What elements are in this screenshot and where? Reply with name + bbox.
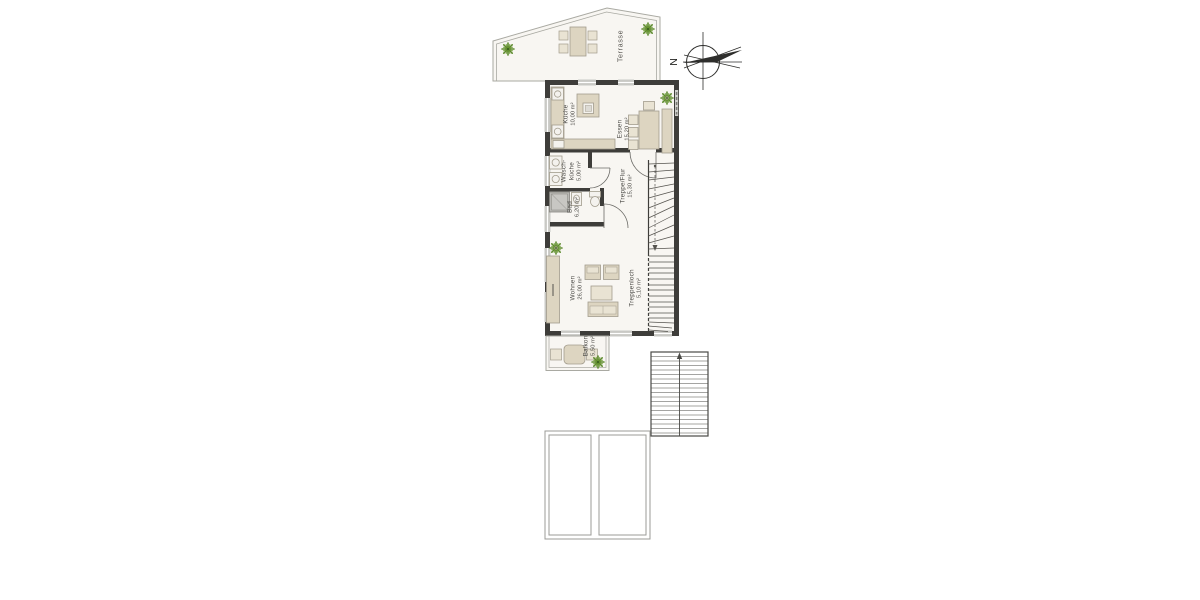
balcony-table <box>564 345 585 364</box>
bathroom-sink <box>572 193 582 206</box>
dining-chair <box>629 115 639 125</box>
terrace-table <box>570 27 586 56</box>
washing-machine <box>550 156 563 169</box>
terrace-area <box>493 8 660 81</box>
dining-sideboard <box>662 109 672 153</box>
dining-chair <box>629 128 639 138</box>
coffee-table <box>591 286 612 300</box>
kitchen-appliance <box>552 125 564 138</box>
balcony-chair <box>551 349 562 360</box>
terrace-chair <box>588 44 597 53</box>
plant-icon <box>502 43 514 55</box>
terrace-chair <box>588 31 597 40</box>
floorplan-page: Terrasse Küche 10,00 m² Essen 15,20 m² W… <box>0 0 1200 600</box>
terrace-chair <box>559 44 568 53</box>
staircase-exterior <box>651 352 708 436</box>
plant-icon <box>661 92 673 104</box>
kitchen-appliance <box>552 88 564 100</box>
terrace-chair <box>559 31 568 40</box>
dining-chair <box>629 140 639 150</box>
compass-north-label: N <box>668 58 680 66</box>
dining-chair <box>644 102 655 111</box>
balcony-area <box>546 336 609 371</box>
dryer <box>550 173 563 186</box>
plant-icon <box>592 356 604 368</box>
plant-icon <box>642 23 654 35</box>
plant-icon <box>550 242 562 254</box>
parking-spaces <box>545 431 650 539</box>
balcony-chair <box>587 349 598 360</box>
floorplan-canvas <box>0 0 1200 600</box>
dining-table <box>639 111 659 149</box>
compass-north-arrow <box>683 32 742 90</box>
watermark-text-strip <box>675 90 678 116</box>
kitchen-cooktop <box>553 141 564 149</box>
